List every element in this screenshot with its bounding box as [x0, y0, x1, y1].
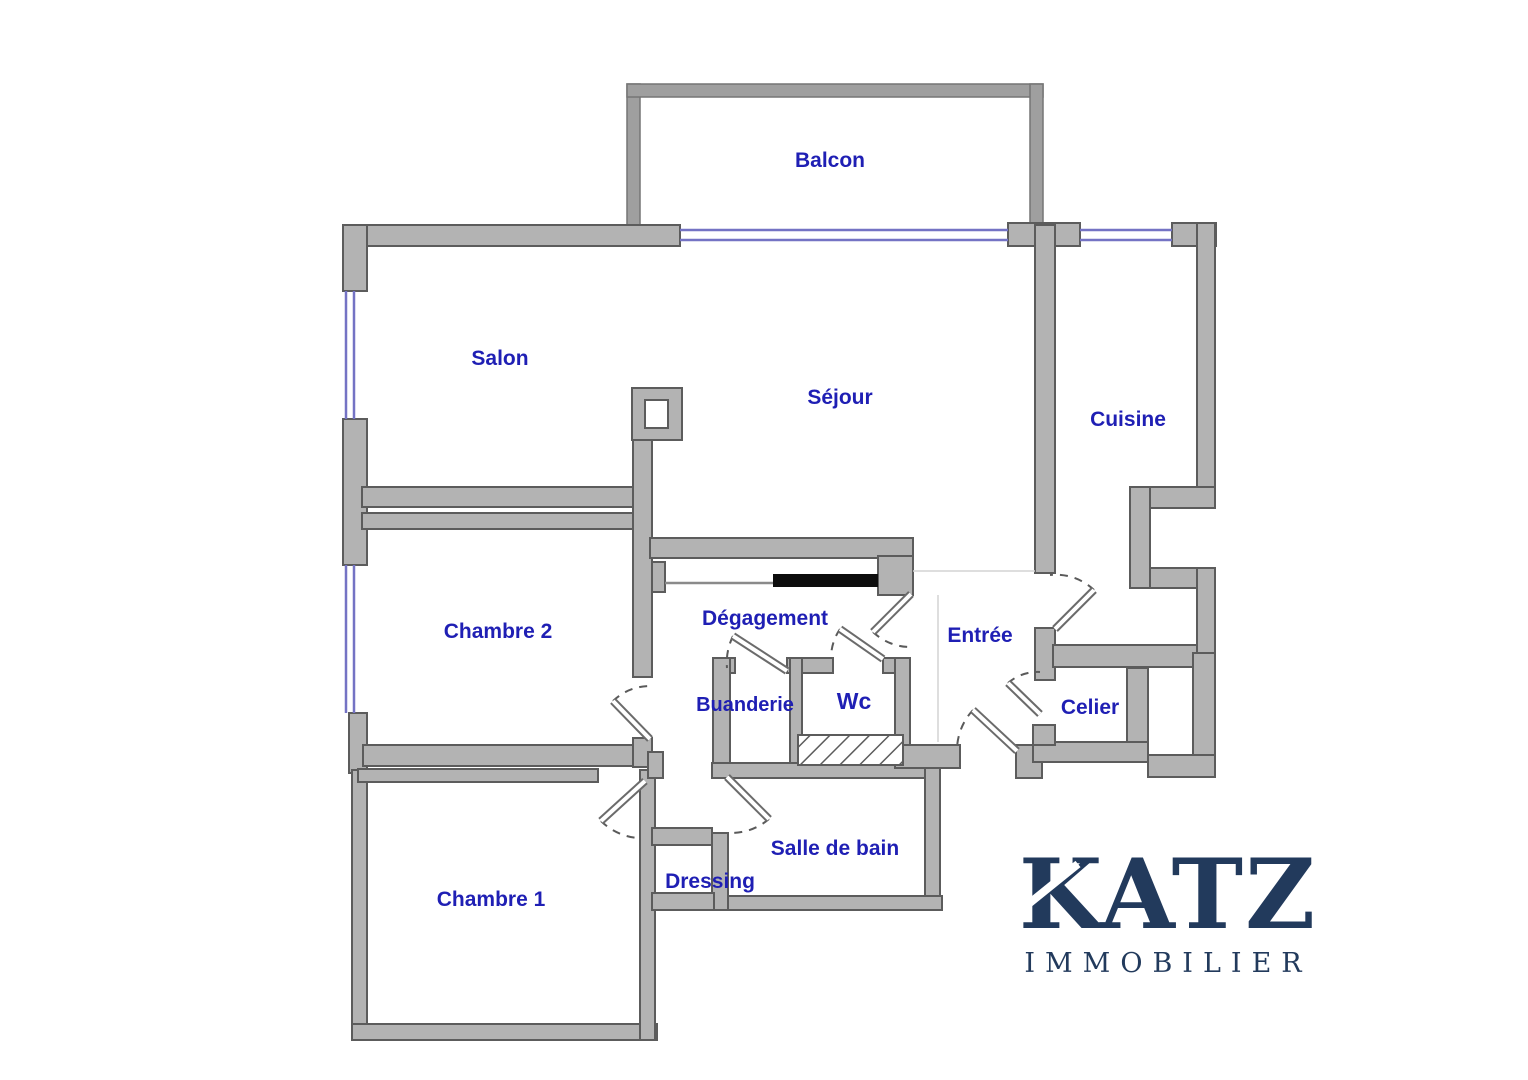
room-label-entree: Entrée [947, 624, 1012, 647]
room-label-dressing: Dressing [665, 870, 755, 893]
room-label-salle-de-bain: Salle de bain [771, 837, 899, 860]
room-label-salon: Salon [471, 347, 528, 370]
agency-logo: KATZ IMMOBILIER [1019, 838, 1317, 979]
room-label-buanderie: Buanderie [696, 694, 794, 716]
room-label-degagement: Dégagement [702, 607, 828, 630]
room-label-balcon: Balcon [795, 149, 865, 172]
room-label-chambre2: Chambre 2 [444, 620, 553, 643]
hatched-duct [798, 735, 903, 765]
room-label-cuisine: Cuisine [1090, 408, 1166, 431]
floor-plan-page: Balcon Salon Séjour Cuisine Chambre 2 Dé… [0, 0, 1528, 1080]
room-label-sejour: Séjour [807, 386, 872, 409]
room-label-chambre1: Chambre 1 [437, 888, 546, 911]
logo-name: KATZ [1019, 838, 1317, 951]
room-label-celier: Celier [1061, 696, 1119, 719]
floor-plan-svg: Balcon Salon Séjour Cuisine Chambre 2 Dé… [0, 0, 1528, 1080]
logo-tagline: IMMOBILIER [1024, 948, 1311, 979]
room-label-wc: Wc [837, 688, 872, 714]
